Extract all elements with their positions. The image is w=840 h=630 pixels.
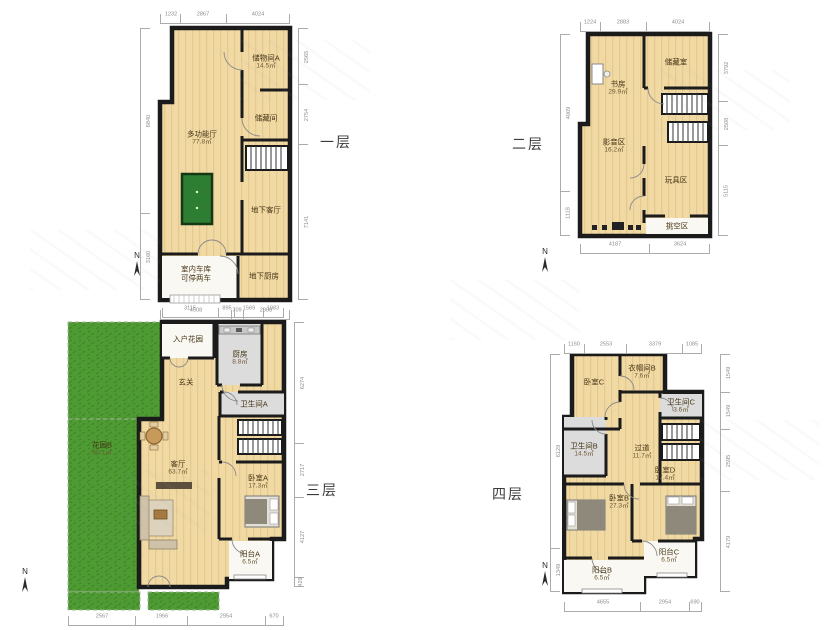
room-label-kitchen: 厨房8.8㎡: [232, 349, 248, 367]
dim-label: 1966: [156, 614, 168, 620]
dimension-rail-top: 1232 2867 4024: [160, 14, 290, 24]
dim-label: 1232: [164, 12, 176, 18]
room-label-garage: 室内车库可停两车: [181, 265, 211, 284]
dim-label: 895: [222, 306, 231, 312]
dimension-rail-left: 6129 1349: [550, 354, 560, 592]
compass-arrow-icon: [540, 256, 550, 274]
stairs: [246, 146, 288, 170]
dim-label: 429: [298, 577, 304, 586]
dimension-rail-left: 4009 1118: [560, 34, 570, 236]
dim-label: 3115: [184, 306, 196, 312]
dim-label: 1118: [565, 207, 571, 219]
dim-label: 4024: [252, 12, 264, 18]
dim-label: 3624: [673, 242, 685, 248]
dim-label: 670: [270, 614, 279, 620]
dim-label: 4187: [609, 242, 621, 248]
dimension-rail-top: 3115 895 1569 1083: [162, 308, 284, 318]
dim-label: 690: [691, 600, 700, 606]
dim-label: 2717: [300, 464, 306, 476]
dim-label: 6274: [300, 377, 306, 389]
dim-label: 1549: [726, 405, 732, 417]
dim-label: 6129: [556, 445, 562, 457]
dimension-rail-right: 3792 2508 5115: [718, 34, 728, 236]
room-label-bath-c: 卫生间C3.6㎡: [667, 397, 695, 415]
dimension-rail-right: 1549 1549 2595 4179: [720, 354, 730, 592]
dimension-rail-bottom: 2567 1966 2954 670: [68, 616, 284, 626]
third-floor-plan: 花园B60.1㎡ 入户花园 厨房8.8㎡ 玄关 卫生间A 客厅63.7㎡ 卧室A…: [60, 306, 326, 630]
compass-north: N: [130, 252, 144, 283]
window: [657, 573, 687, 577]
room-label-study: 书房29.9㎡: [608, 79, 627, 97]
room-label-entry-garden: 入户花园: [173, 334, 203, 343]
compass-north: N: [538, 562, 552, 593]
dim-label: 4655: [596, 600, 608, 606]
pool-table: [182, 174, 212, 224]
dim-label: 2867: [197, 12, 209, 18]
second-floor-walls: [570, 28, 720, 253]
dim-label: 4024: [672, 20, 684, 26]
dim-label: 3160: [146, 250, 152, 262]
floor-title-1: 一层: [320, 132, 352, 152]
dim-label: 2883: [617, 20, 629, 26]
dim-label: 1083: [267, 306, 279, 312]
window: [582, 589, 622, 593]
room-label-balcony-c: 阳台C6.5㎡: [659, 547, 679, 565]
dim-label: 6840: [146, 115, 152, 127]
dim-label: 1085: [686, 342, 698, 348]
dimension-rail-bottom: 4187 3624: [580, 244, 710, 254]
dim-label: 2553: [599, 342, 611, 348]
room-label-basement-living: 地下客厅: [251, 205, 281, 214]
room-label-bed-c: 卧室C: [584, 377, 604, 386]
second-floor-plan: 书房29.9㎡ 储藏室 影音区16.2㎡ 玩具区 挑空区 1224 2883 4…: [556, 16, 756, 316]
room-label-void: 挑空区: [666, 221, 689, 230]
dim-label: 3379: [649, 342, 661, 348]
garage-door: [170, 295, 220, 303]
room-label-storage-a: 储物间A14.5㎡: [252, 53, 280, 71]
dim-label: 3792: [724, 62, 730, 74]
dim-label: 2954: [659, 600, 671, 606]
dim-label: 4179: [726, 535, 732, 547]
dim-label: 7141: [304, 216, 310, 228]
dim-label: 4127: [300, 531, 306, 543]
room-label-balcony-b: 阳台B6.5㎡: [592, 565, 612, 583]
compass-arrow-icon: [20, 576, 30, 594]
bed: [567, 500, 605, 530]
dimension-rail-top: 1224 2883 4024: [580, 22, 710, 32]
room-label-hall: 过道11.7㎡: [633, 443, 652, 461]
dim-label: 1569: [243, 306, 255, 312]
dim-label: 2954: [220, 614, 232, 620]
dim-label: 2565: [304, 50, 310, 62]
dim-label: 2508: [724, 117, 730, 129]
room-label-toys: 玩具区: [665, 175, 688, 184]
fourth-floor-walls: [562, 354, 714, 602]
first-floor-walls: [150, 22, 305, 307]
room-label-balcony-a: 阳台A6.5㎡: [240, 549, 260, 567]
first-floor-plan: 储物间A14.5㎡ 储藏间 多功能厅77.8㎡ 地下客厅 室内车库可停两车 地下…: [136, 12, 332, 328]
dim-label: 5115: [724, 185, 730, 197]
room-label-garden-b: 花园B60.1㎡: [92, 440, 112, 458]
dim-label: 1549: [726, 367, 732, 379]
third-floor-walls: [64, 312, 314, 614]
bed: [666, 496, 696, 534]
dim-label: 1349: [556, 564, 562, 576]
room-label-media: 影音区16.2㎡: [603, 137, 626, 155]
dimension-rail-top: 1160 2553 3379 1085: [564, 344, 702, 354]
dim-label: 1160: [568, 342, 580, 348]
dimension-rail-right: 6274 2717 4127 429: [294, 322, 304, 587]
room-label-storage: 储藏间: [255, 113, 278, 122]
tv-console: [156, 482, 192, 489]
room-label-storeroom: 储藏室: [665, 57, 688, 66]
fourth-floor-plan: 卧室C 衣帽间B7.6㎡ 卫生间C3.6㎡ 过道11.7㎡ 卫生间B14.5㎡ …: [546, 342, 762, 628]
room-label-bed-b: 卧室B27.3㎡: [609, 493, 629, 511]
dimension-rail-right: 2565 2754 7141: [298, 28, 308, 300]
dim-label: 2567: [96, 614, 108, 620]
room-label-bed-a: 卧室A17.3㎡: [248, 473, 268, 491]
compass-north: N: [18, 568, 32, 599]
dim-label: 4009: [566, 107, 572, 119]
dim-label: 2595: [726, 455, 732, 467]
compass-arrow-icon: [132, 260, 142, 278]
dim-label: 2754: [304, 109, 310, 121]
window: [234, 575, 266, 579]
room-label-basement-kitchen: 地下厨房: [249, 271, 279, 280]
room-label-multi: 多功能厅77.8㎡: [187, 129, 217, 147]
floor-title-4: 四层: [492, 484, 524, 504]
room-label-bath-b: 卫生间B14.5㎡: [570, 441, 598, 459]
bed: [245, 496, 279, 527]
room-label-bath-a: 卫生间A: [240, 399, 268, 408]
room-label-foyer: 玄关: [179, 377, 194, 386]
room-label-living: 客厅63.7㎡: [168, 459, 187, 477]
floor-title-2: 二层: [512, 134, 544, 154]
floor-title-3: 三层: [306, 480, 338, 500]
room-label-closet-b: 衣帽间B7.6㎡: [628, 363, 656, 381]
dim-label: 1224: [584, 20, 596, 26]
kitchen-counter: [219, 326, 260, 334]
dimension-rail-bottom: 4655 2954 690: [564, 602, 702, 612]
room-label-bed-d: 卧室D17.4㎡: [655, 465, 675, 483]
compass-north: N: [538, 248, 552, 279]
compass-arrow-icon: [540, 570, 550, 588]
